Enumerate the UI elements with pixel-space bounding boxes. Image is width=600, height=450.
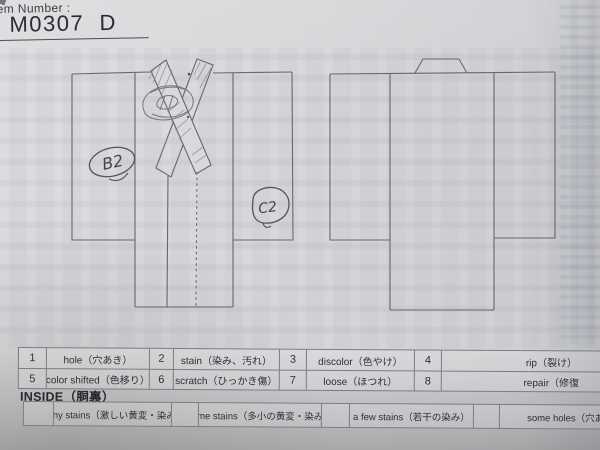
front-seam-solid [167, 176, 168, 307]
legend-code: 7 [279, 370, 306, 390]
inside-option-label: a few stains（若干の染み） [349, 404, 473, 428]
kimono-condition-sheet: Item Number : M0307 D [0, 0, 600, 450]
inside-option-label: many stains（激しい黄変・染み） [53, 402, 171, 426]
legend-code: 3 [279, 350, 306, 370]
legend-code: 1 [19, 348, 46, 368]
legend-label: rip（裂け） [441, 351, 600, 372]
legend-label: hole（穴あき） [46, 348, 149, 369]
legend-label: repair（修復 [441, 371, 600, 392]
inside-condition-table: many stains（激しい黄変・染み） some stains（多小の黄変・… [23, 401, 600, 430]
checkbox-cell [321, 404, 349, 427]
annotation-c2: C2 [252, 188, 288, 228]
band-dot-mark [187, 116, 189, 118]
legend-code: 8 [414, 370, 441, 390]
kimono-front-diagram [72, 59, 293, 307]
legend-label: stain（染み、汚れ） [173, 349, 279, 370]
legend-label: scratch（ひっかき傷） [173, 369, 279, 390]
back-collar [415, 59, 467, 73]
checkbox-cell [24, 402, 53, 425]
front-seam-dashed [196, 172, 197, 307]
inside-option-label: some holes（穴あり [499, 405, 600, 429]
annotation-b2: B2 [86, 143, 137, 181]
legend-code: 2 [149, 349, 173, 369]
collar-dot-mark [188, 73, 191, 76]
checkbox-cell [171, 403, 198, 426]
legend-code: 6 [149, 369, 173, 389]
legend-code: 4 [414, 350, 441, 370]
legend-label: discolor（色やけ） [306, 350, 414, 371]
checkbox-cell [473, 405, 499, 428]
kimono-back-diagram [330, 59, 555, 310]
annotation-c2-text: C2 [257, 199, 278, 217]
annotation-b2-text: B2 [100, 151, 125, 174]
legend-label: loose（ほつれ） [306, 370, 414, 391]
inside-option-label: some stains（多小の黄変・染み） [198, 403, 321, 427]
